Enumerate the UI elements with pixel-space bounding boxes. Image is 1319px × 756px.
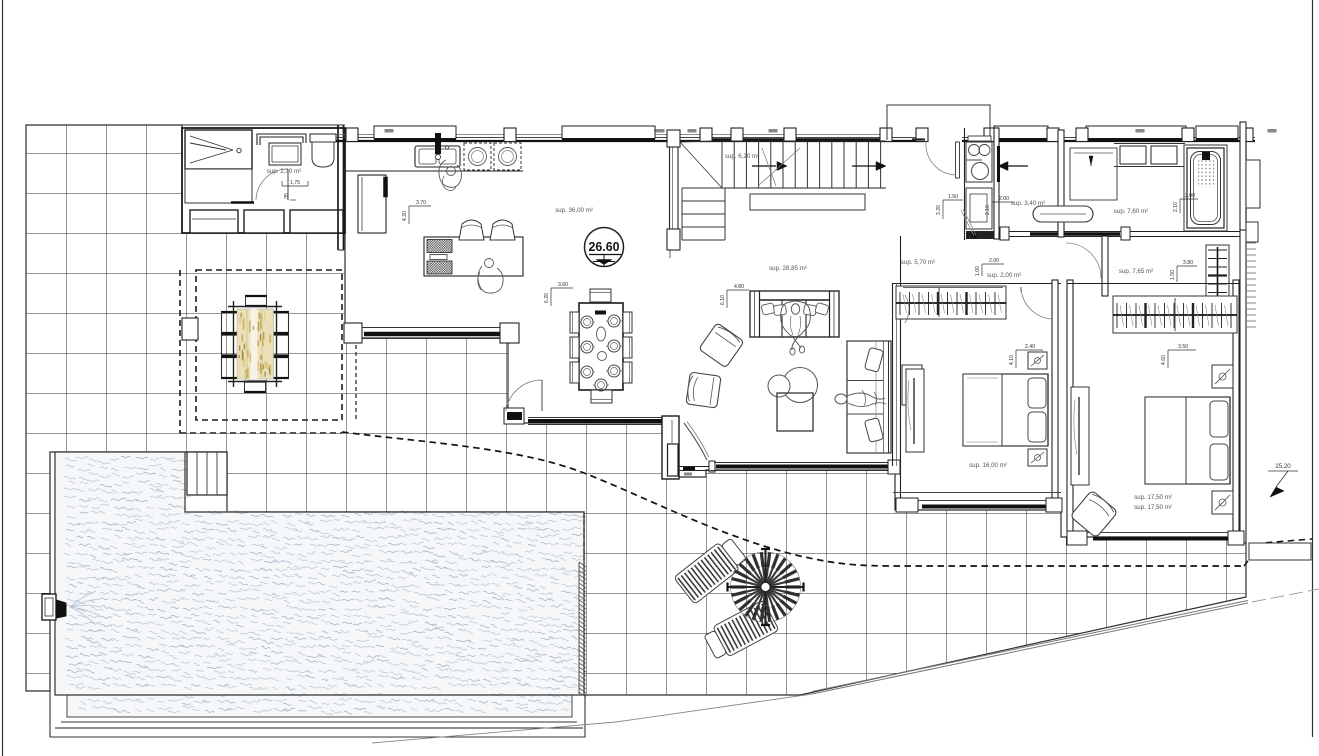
svg-text:2.00: 2.00: [989, 258, 999, 264]
svg-text:3.80: 3.80: [1183, 260, 1193, 266]
svg-text:sup. 28,85 m²: sup. 28,85 m²: [769, 265, 807, 272]
svg-text:sup. 17,50 m²: sup. 17,50 m²: [1134, 504, 1172, 511]
svg-text:sup. 36,00 m²: sup. 36,00 m²: [555, 207, 593, 214]
svg-text:sup. 7,65 m²: sup. 7,65 m²: [1119, 268, 1153, 275]
svg-text:sup. 2,00 m²: sup. 2,00 m²: [987, 272, 1021, 279]
svg-text:3.20: 3.20: [936, 205, 942, 215]
svg-text:2.00: 2.00: [1185, 193, 1195, 199]
svg-text:sup. 5,70 m²: sup. 5,70 m²: [901, 259, 935, 266]
svg-text:4.80: 4.80: [734, 284, 744, 290]
svg-text:sup. 3,40 m²: sup. 3,40 m²: [1011, 200, 1045, 207]
svg-text:4.60: 4.60: [1161, 355, 1167, 365]
svg-text:2.00: 2.00: [999, 196, 1009, 202]
svg-text:1.50: 1.50: [948, 194, 958, 200]
svg-text:1.50: 1.50: [1170, 270, 1176, 280]
svg-text:26.60: 26.60: [589, 240, 620, 254]
svg-text:sup. 16,00 m²: sup. 16,00 m²: [969, 462, 1007, 469]
svg-text:sup. 2,30 m²: sup. 2,30 m²: [267, 168, 301, 175]
svg-text:sup. 17,50 m²: sup. 17,50 m²: [1134, 494, 1172, 501]
svg-text:2.40: 2.40: [1025, 344, 1035, 350]
svg-text:6.20: 6.20: [544, 293, 550, 303]
svg-text:3.70: 3.70: [416, 200, 426, 206]
svg-text:1.00: 1.00: [975, 266, 981, 276]
svg-text:4.20: 4.20: [402, 211, 408, 221]
svg-text:sup. 7,60 m²: sup. 7,60 m²: [1114, 208, 1148, 215]
svg-text:3.60: 3.60: [558, 282, 568, 288]
svg-text:sup. 6,20 m²: sup. 6,20 m²: [725, 153, 759, 160]
svg-text:1,75: 1,75: [290, 180, 300, 186]
svg-text:6.10: 6.10: [720, 295, 726, 305]
svg-text:2.10: 2.10: [985, 205, 991, 215]
svg-text:25.20: 25.20: [1275, 463, 1291, 470]
svg-text:2.10: 2.10: [1173, 202, 1179, 212]
svg-text:35: 35: [284, 193, 290, 199]
svg-text:3.50: 3.50: [1178, 344, 1188, 350]
svg-text:4.10: 4.10: [1009, 355, 1015, 365]
